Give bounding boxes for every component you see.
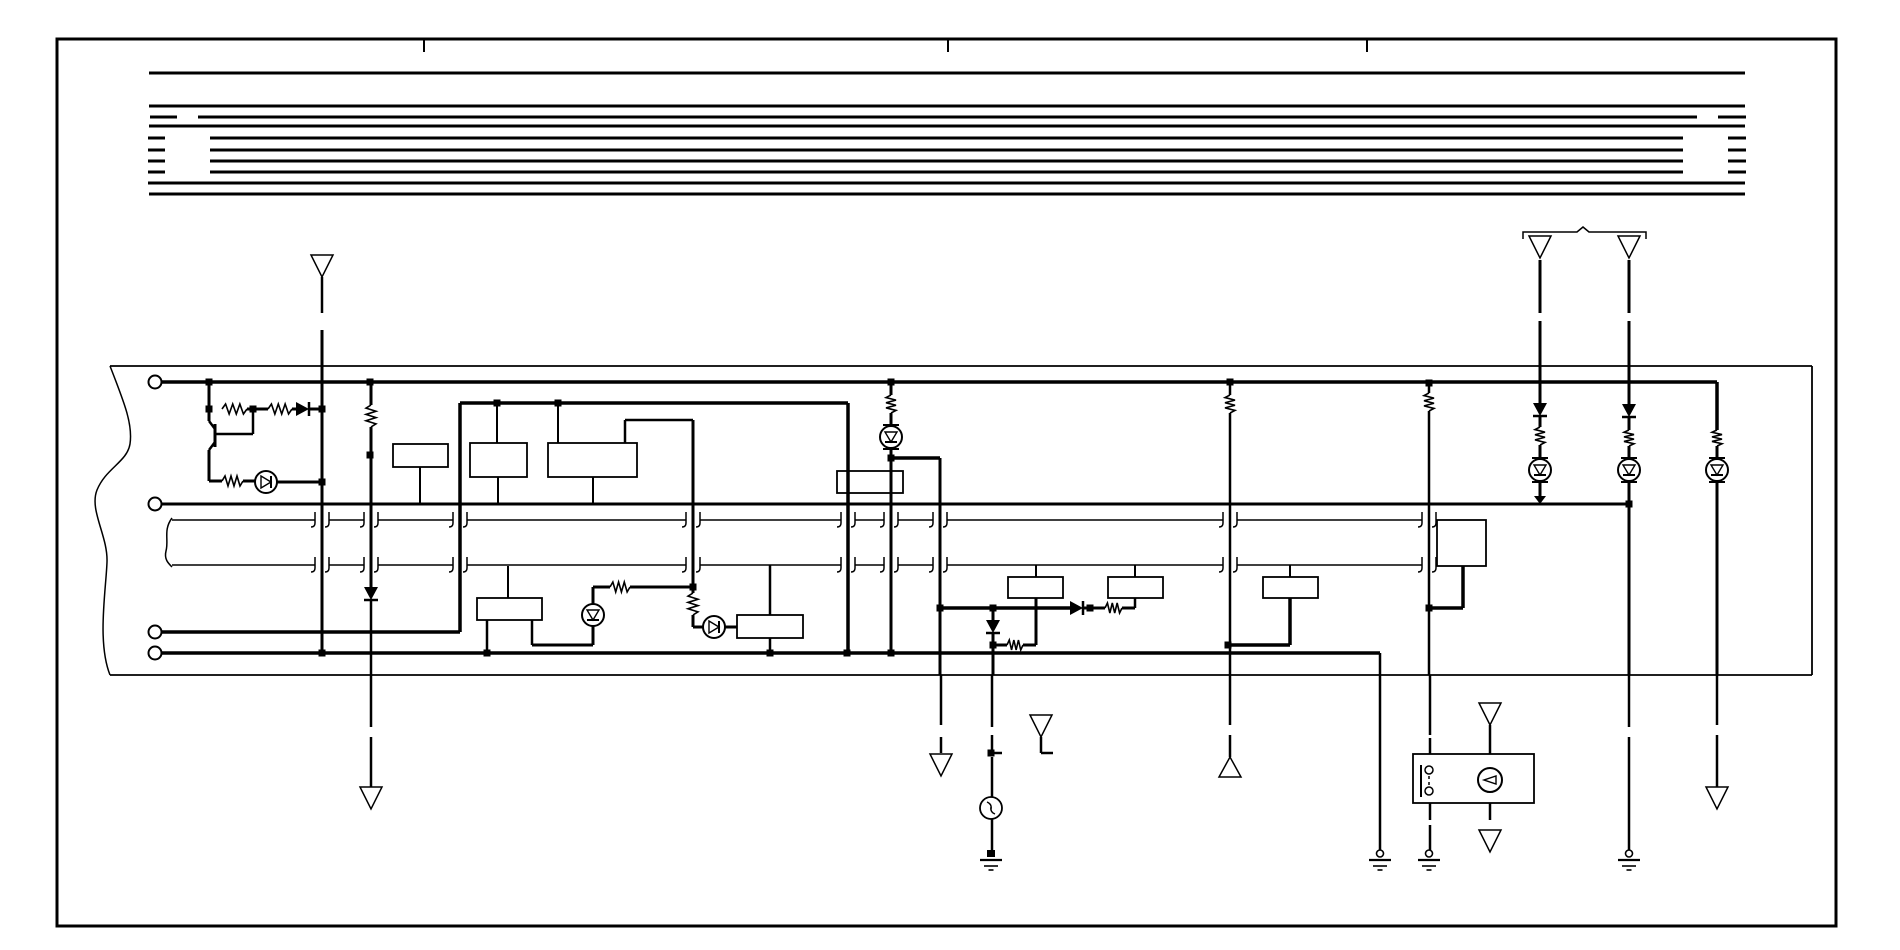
junction-dot <box>1626 501 1633 508</box>
junction-dot <box>888 379 895 386</box>
harness-break-mark <box>851 557 855 572</box>
harness-break-mark <box>1432 557 1436 572</box>
resistor <box>1424 393 1434 411</box>
harness-break-mark <box>463 512 467 527</box>
harness-break-mark <box>851 512 855 527</box>
diode <box>296 402 309 416</box>
junction-dot <box>1087 605 1094 612</box>
junction-dot <box>555 400 562 407</box>
connector-triangle <box>360 787 382 809</box>
junction-dot <box>484 650 491 657</box>
connector-triangle <box>1030 715 1052 737</box>
connector-pin <box>149 626 162 639</box>
diode <box>986 620 1000 633</box>
junction-dot <box>319 479 326 486</box>
junction-dot <box>1225 642 1232 649</box>
connector-triangle <box>1529 236 1551 258</box>
component-box <box>393 444 448 467</box>
harness-break-mark <box>374 557 378 572</box>
harness-break-mark <box>374 512 378 527</box>
component-box <box>477 598 542 620</box>
junction-dot <box>988 750 995 757</box>
junction-dot <box>319 406 326 413</box>
resistor <box>610 582 630 592</box>
connector-triangle <box>311 255 333 277</box>
resistor <box>1535 427 1545 445</box>
harness-break-mark <box>943 512 947 527</box>
junction-dot <box>1227 379 1234 386</box>
resistor <box>1712 430 1722 446</box>
junction-dot <box>1426 605 1433 612</box>
component-box <box>470 443 527 477</box>
junction-dot <box>367 379 374 386</box>
resistor <box>1225 395 1235 413</box>
junction-dot <box>250 406 257 413</box>
ground-terminal <box>987 850 995 857</box>
harness-break-mark <box>894 557 898 572</box>
component-box <box>548 443 637 477</box>
junction-dot <box>319 650 326 657</box>
ground-terminal <box>1377 850 1384 857</box>
junction-dot <box>494 400 501 407</box>
junction-dot <box>206 379 213 386</box>
resistor <box>1624 430 1634 446</box>
diode <box>1533 403 1547 416</box>
wiring-diagram-canvas <box>0 0 1900 950</box>
indicator-lamp <box>582 604 604 626</box>
harness-break-mark <box>463 557 467 572</box>
indicator-lamp <box>880 426 902 448</box>
component-box <box>1008 577 1063 598</box>
indicator-lamp <box>703 616 725 638</box>
component-box <box>1413 754 1534 803</box>
junction-dot <box>990 642 997 649</box>
diode <box>1622 404 1636 417</box>
junction-dot <box>206 406 213 413</box>
indicator-lamp <box>255 471 277 493</box>
harness-break-mark <box>696 512 700 527</box>
junction-dot <box>888 455 895 462</box>
harness-break-mark <box>943 557 947 572</box>
ground-terminal <box>1626 850 1633 857</box>
indicator-lamp <box>1529 459 1551 481</box>
junction-dot <box>888 650 895 657</box>
switch-contact <box>1425 766 1433 774</box>
diode <box>1070 601 1083 615</box>
connector-pin <box>149 498 162 511</box>
connector-triangle <box>1479 703 1501 725</box>
harness-break-mark <box>1233 557 1237 572</box>
junction-dot <box>690 584 697 591</box>
resistor <box>222 404 247 414</box>
resistor <box>688 593 698 615</box>
harness-break-mark <box>894 512 898 527</box>
junction-dot <box>844 650 851 657</box>
switch-contact <box>1425 787 1433 795</box>
junction-dot <box>767 650 774 657</box>
harness-break-mark <box>325 557 329 572</box>
connector-triangle <box>930 754 952 776</box>
junction-dot <box>937 605 944 612</box>
component-box <box>1108 577 1163 598</box>
indicator-lamp <box>1706 459 1728 481</box>
resistor <box>1007 640 1023 650</box>
connector-pin <box>149 647 162 660</box>
harness-break-mark <box>696 557 700 572</box>
cable-band-torn-edge <box>165 518 172 567</box>
connector-pin <box>149 376 162 389</box>
resistor <box>886 395 896 413</box>
connector-triangle <box>1219 757 1241 777</box>
connector-triangle <box>1706 787 1728 809</box>
ground-terminal <box>1426 850 1433 857</box>
resistor <box>268 404 292 414</box>
resistor <box>222 476 243 486</box>
junction-dot <box>990 605 997 612</box>
resistor <box>1105 603 1122 613</box>
component-box <box>1263 577 1318 598</box>
harness-break-mark <box>1233 512 1237 527</box>
indicator-lamp <box>1618 459 1640 481</box>
connector-triangle <box>1479 830 1501 852</box>
junction-dot <box>367 452 374 459</box>
unit-outline-torn-edge <box>95 366 131 675</box>
component-box <box>1437 520 1486 566</box>
junction-dot <box>1426 380 1433 387</box>
component-box <box>737 615 803 638</box>
connector-triangle <box>1618 236 1640 258</box>
resistor <box>366 405 376 427</box>
harness-break-mark <box>1432 512 1436 527</box>
harness-break-mark <box>325 512 329 527</box>
diode <box>364 587 378 600</box>
gauge-circle <box>1478 768 1502 792</box>
schematic-page <box>0 0 1900 950</box>
